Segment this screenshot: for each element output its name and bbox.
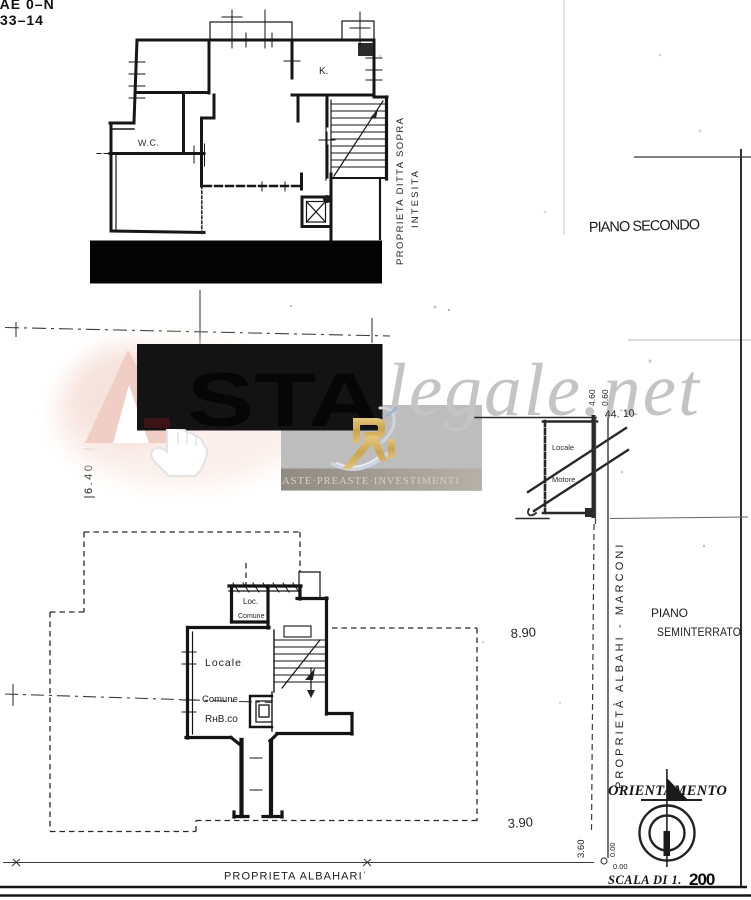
svg-text:8.90: 8.90 (510, 624, 536, 641)
svg-text:Locale: Locale (205, 657, 242, 669)
svg-text:0.00: 0.00 (608, 842, 617, 857)
svg-text:PROPRIETA DITTA SOPRA: PROPRIETA DITTA SOPRA (395, 117, 406, 265)
svg-text:0.00: 0.00 (613, 862, 628, 871)
svg-text:0.60: 0.60 (600, 389, 610, 406)
svg-text:Motore: Motore (552, 475, 575, 484)
svg-text:Comune: Comune (238, 613, 265, 620)
svg-text:3.60: 3.60 (576, 840, 587, 859)
svg-text:44.ʾ10: 44.ʾ10 (605, 407, 636, 421)
svg-text:3.90: 3.90 (507, 814, 533, 831)
svg-text:PIANO: PIANO (651, 606, 688, 620)
svg-text:´AE 0–N: ´AE 0–N (0, 0, 55, 12)
svg-text:200: 200 (689, 870, 715, 889)
svg-text:Locale: Locale (552, 443, 574, 452)
svg-text:W.C.: W.C. (138, 138, 160, 148)
svg-text:RʜB.co: RʜB.co (205, 714, 238, 725)
svg-text:ASTE·PREASTE·INVESTIMENTI: ASTE·PREASTE·INVESTIMENTI (282, 476, 460, 487)
svg-text:4.60: 4.60 (587, 389, 597, 406)
svg-text:legale.net: legale.net (386, 349, 701, 432)
svg-text:STA: STA (187, 358, 381, 443)
svg-text:INTESITA: INTESITA (410, 170, 421, 228)
svg-text:PROPRIETÀ ALBAHI - MARCONI: PROPRIETÀ ALBAHI - MARCONI (613, 543, 626, 789)
svg-text:K.: K. (319, 66, 328, 77)
svg-text:33–14: 33–14 (0, 12, 44, 28)
svg-text:PROPRIETA ALBAHARIʿ: PROPRIETA ALBAHARIʿ (224, 871, 368, 883)
svg-text:SEMINTERRATO: SEMINTERRATO (657, 627, 741, 639)
svg-text:Comune: Comune (202, 694, 238, 705)
svg-text:6.40: 6.40 (83, 463, 95, 494)
svg-text:PIANO SECONDO: PIANO SECONDO (589, 217, 701, 236)
svg-text:Loc.: Loc. (243, 597, 258, 606)
svg-text:SCALA DI 1.: SCALA DI 1. (608, 873, 682, 887)
